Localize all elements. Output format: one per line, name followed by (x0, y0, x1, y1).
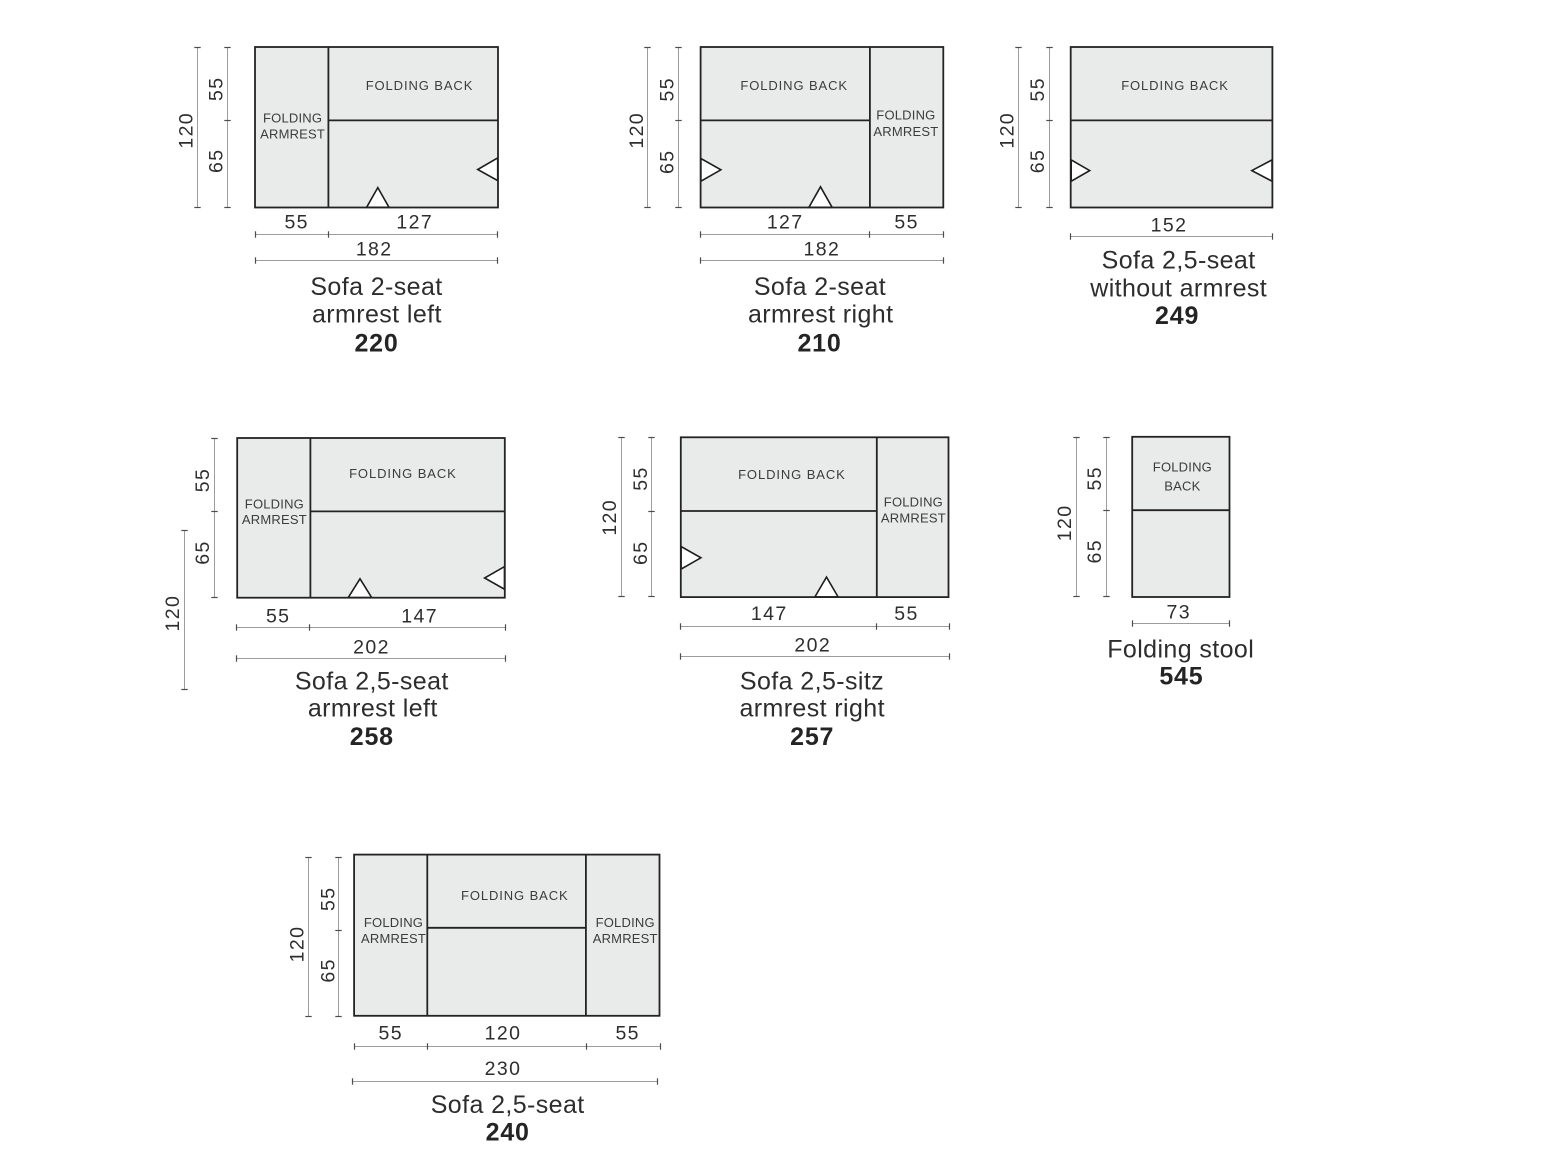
svg-text:without armrest: without armrest (1089, 274, 1267, 302)
svg-text:Sofa 2,5-seat: Sofa 2,5-seat (295, 667, 449, 695)
svg-text:55: 55 (894, 603, 919, 625)
svg-text:Sofa 2,5-seat: Sofa 2,5-seat (431, 1091, 585, 1119)
svg-text:armrest left: armrest left (312, 301, 442, 329)
svg-text:152: 152 (1151, 215, 1188, 237)
svg-text:FOLDING: FOLDING (364, 915, 423, 930)
svg-text:55: 55 (205, 77, 227, 102)
svg-text:120: 120 (599, 499, 621, 536)
svg-text:Sofa 2-seat: Sofa 2-seat (310, 273, 442, 301)
svg-text:55: 55 (266, 605, 291, 627)
svg-text:120: 120 (162, 595, 184, 632)
svg-text:Sofa 2-seat: Sofa 2-seat (754, 273, 886, 301)
svg-text:55: 55 (1027, 77, 1049, 102)
svg-text:55: 55 (317, 886, 339, 911)
svg-text:FOLDING: FOLDING (876, 107, 935, 122)
svg-text:FOLDING: FOLDING (1153, 460, 1212, 475)
svg-text:armrest right: armrest right (748, 301, 894, 329)
svg-text:249: 249 (1155, 302, 1199, 330)
svg-text:120: 120 (286, 926, 308, 963)
svg-text:55: 55 (630, 466, 652, 491)
svg-text:55: 55 (379, 1022, 404, 1044)
svg-text:ARMREST: ARMREST (881, 511, 946, 526)
svg-text:FOLDING BACK: FOLDING BACK (366, 78, 474, 93)
svg-text:258: 258 (350, 723, 394, 751)
svg-text:220: 220 (354, 330, 398, 358)
svg-text:FOLDING BACK: FOLDING BACK (740, 78, 848, 93)
svg-text:65: 65 (317, 958, 339, 983)
svg-text:127: 127 (396, 212, 433, 234)
svg-text:120: 120 (485, 1022, 522, 1044)
svg-text:127: 127 (767, 212, 804, 234)
svg-text:120: 120 (626, 112, 648, 149)
svg-text:ARMREST: ARMREST (593, 931, 658, 946)
svg-text:210: 210 (797, 330, 841, 358)
svg-text:55: 55 (894, 212, 919, 234)
svg-text:65: 65 (1027, 149, 1049, 174)
svg-text:FOLDING BACK: FOLDING BACK (461, 888, 569, 903)
svg-text:FOLDING BACK: FOLDING BACK (1121, 78, 1229, 93)
svg-text:FOLDING BACK: FOLDING BACK (349, 466, 457, 481)
svg-text:ARMREST: ARMREST (873, 124, 938, 139)
svg-text:55: 55 (1084, 466, 1106, 491)
svg-text:ARMREST: ARMREST (260, 126, 325, 141)
svg-text:240: 240 (486, 1118, 530, 1146)
svg-text:FOLDING: FOLDING (884, 495, 943, 510)
svg-text:FOLDING: FOLDING (245, 496, 304, 511)
svg-text:BACK: BACK (1164, 478, 1200, 493)
svg-text:FOLDING: FOLDING (596, 915, 655, 930)
svg-text:ARMREST: ARMREST (242, 512, 307, 527)
svg-text:55: 55 (615, 1022, 640, 1044)
svg-text:Sofa 2,5-seat: Sofa 2,5-seat (1102, 246, 1256, 274)
svg-text:55: 55 (192, 468, 214, 493)
svg-text:120: 120 (176, 112, 198, 149)
svg-text:147: 147 (751, 603, 788, 625)
svg-text:182: 182 (356, 238, 393, 260)
svg-text:182: 182 (804, 238, 841, 260)
svg-text:ARMREST: ARMREST (361, 931, 426, 946)
svg-text:545: 545 (1159, 663, 1203, 691)
svg-text:65: 65 (192, 540, 214, 565)
svg-text:73: 73 (1167, 602, 1192, 624)
svg-text:FOLDING BACK: FOLDING BACK (738, 467, 846, 482)
svg-text:55: 55 (284, 212, 309, 234)
svg-text:55: 55 (656, 77, 678, 102)
svg-text:65: 65 (1084, 539, 1106, 564)
svg-text:257: 257 (790, 723, 834, 751)
svg-text:120: 120 (1054, 505, 1076, 542)
svg-text:65: 65 (656, 150, 678, 175)
svg-text:120: 120 (997, 112, 1019, 149)
svg-text:FOLDING: FOLDING (263, 111, 322, 126)
svg-text:65: 65 (205, 149, 227, 174)
svg-text:armrest right: armrest right (739, 695, 885, 723)
svg-text:65: 65 (630, 541, 652, 566)
svg-text:Folding stool: Folding stool (1107, 636, 1254, 664)
svg-text:230: 230 (485, 1058, 522, 1080)
svg-text:147: 147 (401, 605, 438, 627)
svg-text:202: 202 (794, 635, 831, 657)
svg-text:Sofa 2,5-sitz: Sofa 2,5-sitz (740, 667, 884, 695)
svg-text:202: 202 (353, 636, 390, 658)
svg-text:armrest left: armrest left (308, 694, 438, 722)
